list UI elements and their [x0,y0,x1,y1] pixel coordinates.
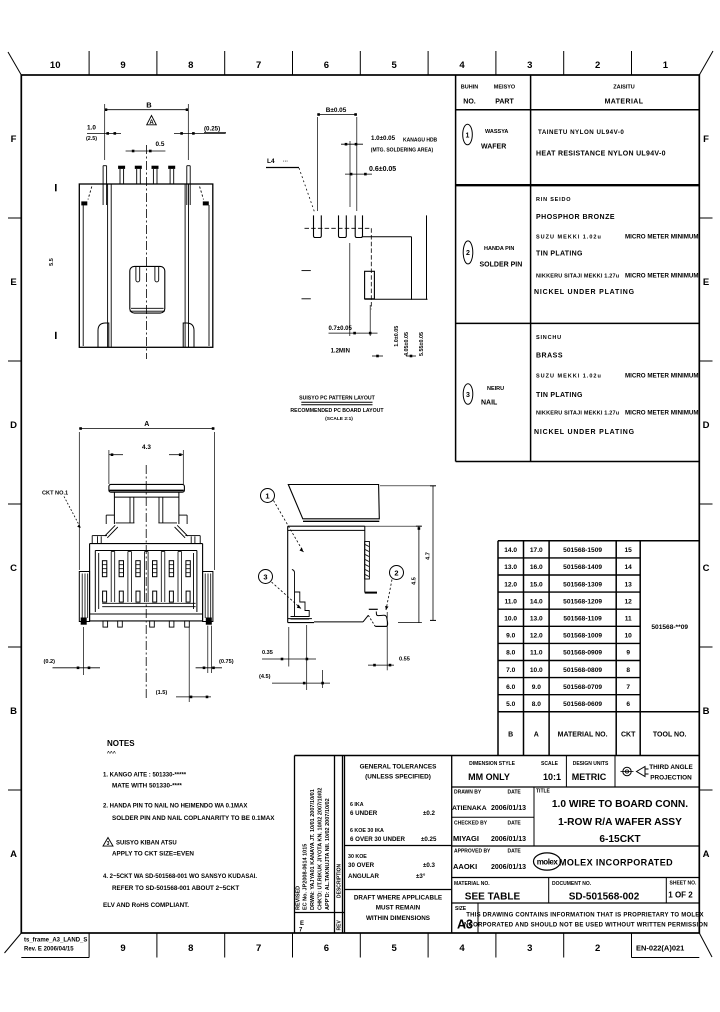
svg-text:1.0±0.05: 1.0±0.05 [394,326,400,347]
svg-text:6: 6 [324,60,329,71]
svg-text:8: 8 [626,667,630,674]
svg-text:501568-1009: 501568-1009 [563,633,602,640]
svg-text:15: 15 [625,547,633,554]
svg-text:DRAFT WHERE APPLICABLE: DRAFT WHERE APPLICABLE [354,895,442,902]
svg-text:±0.2: ±0.2 [423,810,436,817]
svg-text:ts_frame_A3_LAND_S: ts_frame_A3_LAND_S [24,938,87,944]
svg-text:30 KOE: 30 KOE [348,854,367,860]
svg-text:0.7±0.05: 0.7±0.05 [329,326,353,332]
svg-text:KANAGU HDB: KANAGU HDB [403,138,438,144]
svg-text:4.5: 4.5 [412,577,418,585]
svg-text:1: 1 [663,60,669,71]
svg-text:AAOKI: AAOKI [453,862,477,871]
svg-text:(4.5): (4.5) [259,674,271,680]
svg-text:A: A [703,849,710,860]
svg-text:F: F [11,134,17,145]
svg-text:SD-501568-002: SD-501568-002 [569,892,640,903]
svg-text:ZAISITU: ZAISITU [613,85,634,91]
svg-text:METRIC: METRIC [572,772,607,782]
svg-text:1-ROW R/A WAFER ASSY: 1-ROW R/A WAFER ASSY [558,817,682,828]
svg-text:REVISED: REVISED [296,886,302,910]
svg-text:HEAT RESISTANCE NYLON UL94V-0: HEAT RESISTANCE NYLON UL94V-0 [536,151,666,158]
svg-text:EC No. JP2008-0614 1015: EC No. JP2008-0614 1015 [303,844,309,910]
svg-text:SINCHU: SINCHU [536,335,562,341]
svg-text:6: 6 [626,701,630,708]
svg-text:A: A [144,421,149,428]
svg-text:CHECKED BY: CHECKED BY [454,821,488,827]
svg-text:ANGULAR: ANGULAR [348,873,379,880]
svg-text:8.0: 8.0 [532,701,541,708]
svg-text:9.0: 9.0 [506,633,515,640]
svg-text:L4: L4 [267,158,275,165]
svg-text:7.0: 7.0 [506,667,515,674]
svg-text:TOOL NO.: TOOL NO. [653,732,687,739]
svg-text:2. HANDA PIN TO NAIL NO HEIMEN: 2. HANDA PIN TO NAIL NO HEIMENDO WA 0.1M… [103,804,247,810]
svg-text:ELV AND RoHS COMPLIANT.: ELV AND RoHS COMPLIANT. [103,902,189,909]
svg-text:RECOMMENDED PC BOARD LAYOUT: RECOMMENDED PC BOARD LAYOUT [290,408,384,414]
svg-text:1 OF 2: 1 OF 2 [668,891,693,900]
svg-text:4: 4 [459,943,465,954]
svg-text:501568-1509: 501568-1509 [563,547,602,554]
svg-text:E: E [703,277,709,288]
svg-text:B: B [703,706,710,717]
svg-text:7: 7 [256,943,261,954]
svg-text:(MTG. SOLDERING AREA): (MTG. SOLDERING AREA) [371,148,434,154]
svg-text:6-15CKT: 6-15CKT [599,834,641,845]
svg-text:501568-**09: 501568-**09 [651,624,688,631]
svg-text:B±0.05: B±0.05 [326,107,347,114]
svg-text:EN-022(A)021: EN-022(A)021 [636,944,684,953]
svg-text:MATE WITH 501330-****: MATE WITH 501330-**** [112,783,182,790]
svg-text:THIS DRAWING CONTAINS INFORMAT: THIS DRAWING CONTAINS INFORMATION THAT I… [466,913,704,919]
svg-text:DRWN: YAJYA01 KANAYA JT. 10/01: DRWN: YAJYA01 KANAYA JT. 10/01 2007/10/0… [310,789,316,910]
svg-text:SIZE: SIZE [455,906,467,912]
svg-text:MICRO METER MINIMUM: MICRO METER MINIMUM [625,373,699,380]
svg-text:B: B [508,732,513,739]
svg-text:10.0: 10.0 [504,616,517,623]
svg-text:3: 3 [107,841,110,847]
svg-text:B: B [146,100,152,109]
svg-text:10: 10 [50,60,61,71]
svg-text:SUISYO KIBAN ATSU: SUISYO KIBAN ATSU [116,841,177,847]
svg-text:PROJECTION: PROJECTION [650,775,692,782]
svg-text:4.3: 4.3 [142,444,151,451]
svg-text:B: B [10,706,17,717]
svg-text:(0.2): (0.2) [44,659,56,665]
svg-text:3: 3 [466,392,470,399]
svg-text:501568-0709: 501568-0709 [563,684,602,691]
svg-text:WAFER: WAFER [481,144,506,151]
svg-text:16.0: 16.0 [530,564,543,571]
svg-text:(2.5): (2.5) [86,136,97,142]
svg-text:501568-1409: 501568-1409 [563,564,602,571]
svg-text:SUISYO PC PATTERN LAYOUT: SUISYO PC PATTERN LAYOUT [299,396,376,402]
svg-text:6 IKA: 6 IKA [350,802,364,808]
svg-text:501568-1309: 501568-1309 [563,581,602,588]
svg-text:DATE: DATE [508,849,522,855]
svg-text:6 KOE 30 IKA: 6 KOE 30 IKA [350,828,384,834]
svg-text:14.0: 14.0 [504,547,517,554]
svg-text:ATIENAKA: ATIENAKA [452,805,487,812]
svg-text:···: ··· [283,159,288,165]
svg-text:0.55: 0.55 [399,657,410,663]
svg-text:3: 3 [263,573,267,582]
svg-text:501568-0909: 501568-0909 [563,650,602,657]
svg-text:NAIL: NAIL [481,400,498,407]
svg-text:1.0±0.05: 1.0±0.05 [371,135,396,142]
svg-text:INCORPORATED AND SHOULD NOT BE: INCORPORATED AND SHOULD NOT BE USED WITH… [462,923,708,929]
svg-text:0.6±0.05: 0.6±0.05 [369,166,396,173]
svg-text:SUZU MEKKI 1.02u: SUZU MEKKI 1.02u [536,374,602,380]
svg-text:2: 2 [466,250,470,257]
svg-text:TIN PLATING: TIN PLATING [536,392,583,399]
svg-text:DATE: DATE [508,821,522,827]
svg-text:WASSYA: WASSYA [485,129,508,135]
svg-text:5.0: 5.0 [506,701,515,708]
svg-text:11.0: 11.0 [530,650,543,657]
svg-text:9.0: 9.0 [532,684,541,691]
svg-text:6.0: 6.0 [506,684,515,691]
svg-text:(SCALE 2:1): (SCALE 2:1) [325,416,353,422]
svg-text:2006/01/13: 2006/01/13 [491,864,526,871]
svg-text:DATE: DATE [508,790,522,796]
svg-text:14.0: 14.0 [530,598,543,605]
svg-text:4: 4 [459,60,465,71]
svg-text:30 OVER: 30 OVER [348,862,375,869]
svg-text:10:1: 10:1 [543,772,561,782]
svg-text:13.0: 13.0 [504,564,517,571]
svg-text:9: 9 [626,650,630,657]
svg-text:MIYAGI: MIYAGI [453,834,479,843]
svg-text:^^^: ^^^ [107,751,116,757]
svg-text:TAINETU NYLON UL94V-0: TAINETU NYLON UL94V-0 [538,129,624,136]
svg-text:SHEET NO.: SHEET NO. [670,881,698,887]
svg-text:NEIRU: NEIRU [487,386,504,392]
svg-text:APP'D: AL.TAKNUJTA NII. 10/02: APP'D: AL.TAKNUJTA NII. 10/02 2007/10/02 [325,798,331,910]
svg-text:7: 7 [626,684,630,691]
svg-text:14: 14 [625,564,633,571]
svg-text:A: A [10,849,17,860]
svg-text:0.5: 0.5 [156,141,165,148]
svg-text:APPROVED BY: APPROVED BY [454,849,491,855]
svg-text:NICKEL UNDER PLATING: NICKEL UNDER PLATING [534,289,635,296]
svg-text:PART: PART [495,99,514,106]
svg-text:RIN SEIDO: RIN SEIDO [536,197,571,203]
svg-text:501568-0809: 501568-0809 [563,667,602,674]
svg-text:2: 2 [595,60,600,71]
svg-text:E: E [10,277,16,288]
svg-text:MM ONLY: MM ONLY [468,772,510,782]
svg-text:6: 6 [324,943,329,954]
svg-text:THIRD ANGLE: THIRD ANGLE [649,764,693,771]
svg-text:DESIGN UNITS: DESIGN UNITS [573,761,609,767]
svg-text:17.0: 17.0 [530,547,543,554]
svg-text:1.0: 1.0 [87,125,96,132]
svg-text:15.0: 15.0 [530,581,543,588]
svg-text:D: D [10,420,17,431]
svg-text:PHOSPHOR BRONZE: PHOSPHOR BRONZE [536,214,615,221]
svg-text:E: E [300,921,304,927]
svg-text:10: 10 [625,633,633,640]
svg-text:MICRO METER MINIMUM: MICRO METER MINIMUM [625,234,699,241]
svg-text:±0.3: ±0.3 [423,862,436,869]
svg-text:NIKKERU SITAJI MEKKI 1.27u: NIKKERU SITAJI MEKKI 1.27u [536,411,619,417]
svg-text:D: D [703,420,710,431]
svg-text:DESCRIPTION: DESCRIPTION [337,863,343,898]
svg-text:3: 3 [527,943,532,954]
svg-text:7: 7 [256,60,261,71]
svg-text:8.0: 8.0 [506,650,515,657]
svg-text:13: 13 [625,581,633,588]
svg-text:A: A [149,120,154,126]
svg-text:6 OVER 30 UNDER: 6 OVER 30 UNDER [350,836,406,843]
svg-text:REFER TO SD-501568-001 ABOUT 2: REFER TO SD-501568-001 ABOUT 2~5CKT [112,885,239,892]
svg-text:MOLEX INCORPORATED: MOLEX INCORPORATED [559,858,673,868]
svg-text:8: 8 [188,60,193,71]
svg-text:5.5: 5.5 [49,258,55,266]
svg-text:±0.25: ±0.25 [421,836,437,843]
svg-text:NO.: NO. [463,99,476,106]
svg-text:CKT: CKT [621,732,636,739]
svg-text:1. KANGO AITE : 501330-*****: 1. KANGO AITE : 501330-***** [103,773,187,779]
svg-text:11.0: 11.0 [504,598,517,605]
svg-text:6 UNDER: 6 UNDER [350,810,378,817]
svg-text:12: 12 [625,598,633,605]
svg-text:HANDA PIN: HANDA PIN [484,246,514,252]
svg-text:MICRO METER MINIMUM: MICRO METER MINIMUM [625,273,699,280]
svg-text:501568-1209: 501568-1209 [563,598,602,605]
svg-text:2006/01/13: 2006/01/13 [491,805,526,812]
svg-text:BUHIN: BUHIN [461,85,478,91]
svg-text:Rev. E 2006/04/15: Rev. E 2006/04/15 [24,947,74,953]
svg-text:(0.25): (0.25) [204,126,220,133]
svg-text:9: 9 [120,943,125,954]
svg-text:MICRO METER MINIMUM: MICRO METER MINIMUM [625,410,699,417]
svg-text:CHK'D: UT.RIKUK JIYOTA KN. 10/: CHK'D: UT.RIKUK JIYOTA KN. 10/02 2007/10… [318,788,324,910]
svg-text:C: C [10,563,17,574]
svg-text:MATERIAL: MATERIAL [605,99,644,106]
svg-text:501568-0609: 501568-0609 [563,701,602,708]
svg-text:NOTES: NOTES [107,739,135,748]
svg-text:12.0: 12.0 [530,633,543,640]
svg-text:SOLDER PIN AND NAIL COPLANARIT: SOLDER PIN AND NAIL COPLANARITY TO BE 0.… [112,815,275,822]
svg-text:(1.5): (1.5) [156,690,168,696]
svg-text:F: F [703,134,709,145]
svg-text:10.0: 10.0 [530,667,543,674]
svg-text:SEE TABLE: SEE TABLE [465,892,521,903]
svg-text:4. 2~5CKT WA SD-501568-001 WO: 4. 2~5CKT WA SD-501568-001 WO SANSYO KUD… [103,874,257,880]
svg-text:GENERAL TOLERANCES: GENERAL TOLERANCES [360,764,438,771]
svg-text:2006/01/13: 2006/01/13 [491,836,526,843]
svg-text:1.0 WIRE TO BOARD CONN.: 1.0 WIRE TO BOARD CONN. [552,799,688,810]
svg-text:5.55±0.05: 5.55±0.05 [419,332,425,356]
svg-text:2: 2 [394,569,398,578]
svg-text:MATERIAL NO.: MATERIAL NO. [454,881,490,887]
svg-text:5: 5 [392,943,398,954]
svg-text:1.2MIN: 1.2MIN [331,349,350,355]
svg-text:12.0: 12.0 [504,581,517,588]
svg-text:TIN PLATING: TIN PLATING [536,251,583,258]
svg-text:A: A [534,732,539,739]
svg-text:NIKKERU SITAJI MEKKI 1.27u: NIKKERU SITAJI MEKKI 1.27u [536,274,619,280]
svg-text:MEISYO: MEISYO [494,85,516,91]
svg-text:0.35: 0.35 [262,650,273,656]
svg-text:3: 3 [527,60,532,71]
svg-text:C: C [703,563,710,574]
svg-text:MATERIAL NO.: MATERIAL NO. [558,732,608,739]
svg-text:REV: REV [337,920,343,931]
svg-text:TITLE: TITLE [536,789,551,795]
svg-text:molex: molex [537,858,559,867]
svg-text:BRASS: BRASS [536,353,563,360]
svg-text:WITHIN DIMENSIONS: WITHIN DIMENSIONS [366,915,430,922]
svg-text:1: 1 [265,492,269,501]
svg-text:MUST REMAIN: MUST REMAIN [376,905,421,912]
svg-text:5: 5 [392,60,398,71]
svg-text:501568-1109: 501568-1109 [563,616,602,623]
svg-text:CKT NO.1: CKT NO.1 [42,491,68,497]
svg-text:8: 8 [188,943,193,954]
svg-text:(0.75): (0.75) [219,659,234,665]
svg-text:DIMENSION STYLE: DIMENSION STYLE [469,761,516,767]
svg-text:NICKEL UNDER PLATING: NICKEL UNDER PLATING [534,429,635,436]
svg-text:±3°: ±3° [416,873,426,880]
svg-text:SUZU MEKKI 1.02u: SUZU MEKKI 1.02u [536,235,602,241]
svg-text:9: 9 [120,60,125,71]
svg-text:SOLDER PIN: SOLDER PIN [480,262,523,269]
svg-text:11: 11 [625,616,632,623]
svg-text:4.05±0.05: 4.05±0.05 [404,332,410,356]
svg-text:4.7: 4.7 [426,552,432,560]
svg-text:2: 2 [595,943,600,954]
svg-text:DOCUMENT NO.: DOCUMENT NO. [552,881,592,887]
svg-text:DRAWN BY: DRAWN BY [454,790,482,796]
svg-text:1: 1 [466,132,470,139]
svg-text:13.0: 13.0 [530,616,543,623]
svg-text:SCALE: SCALE [541,761,559,767]
svg-text:(UNLESS SPECIFIED): (UNLESS SPECIFIED) [365,774,431,781]
svg-text:APPLY TO CKT SIZE=EVEN: APPLY TO CKT SIZE=EVEN [112,851,194,858]
